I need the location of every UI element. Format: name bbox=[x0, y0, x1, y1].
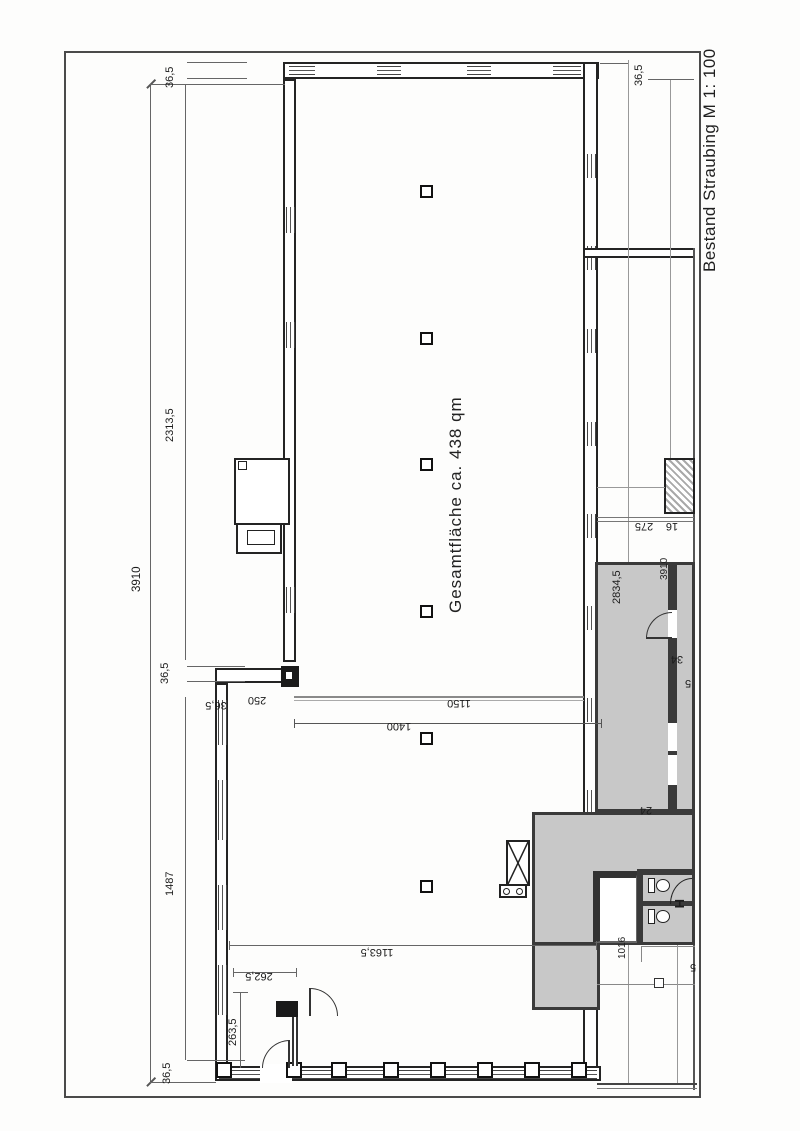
window-strip bbox=[286, 587, 295, 613]
tick bbox=[233, 968, 234, 977]
tick bbox=[596, 941, 597, 950]
dim-label-24: 24 bbox=[637, 804, 655, 816]
dim-label-34: 34 bbox=[668, 653, 686, 665]
tick bbox=[187, 666, 245, 667]
column-footing bbox=[331, 1062, 347, 1078]
area-label: Gesamtfläche ca. 438 qm bbox=[450, 350, 480, 660]
window-strip bbox=[467, 66, 491, 75]
toilet-bowl-icon bbox=[656, 879, 670, 892]
dim-label-1400: 1400 bbox=[378, 720, 420, 732]
window-strip bbox=[553, 66, 581, 75]
dim-label-1150: 1150 bbox=[438, 697, 480, 709]
toilet-icon bbox=[648, 909, 655, 924]
dim-label-edge-5: 5 bbox=[688, 961, 698, 973]
annex-line bbox=[597, 984, 695, 985]
drawing-title: Bestand Straubing M 1: 100 bbox=[704, 25, 734, 295]
wall-top bbox=[283, 62, 599, 79]
tick bbox=[601, 719, 602, 728]
dim-label-36-top-left: 36,5 bbox=[164, 56, 180, 98]
entry-wall-block bbox=[276, 1001, 298, 1017]
window-strip bbox=[218, 885, 227, 930]
dim-label-263: 263,5 bbox=[227, 1000, 243, 1064]
column-footing bbox=[216, 1062, 232, 1078]
dim-label-3910-left: 3910 bbox=[131, 550, 147, 608]
dim-label-1163: 1163,5 bbox=[352, 946, 402, 958]
dim-label-36-top-right: 36,5 bbox=[633, 54, 649, 96]
dim-label-step-36: 36,5 bbox=[200, 699, 232, 711]
dim-line-right-inner bbox=[670, 80, 671, 458]
wc-partition-left bbox=[637, 869, 643, 945]
dim-label-5: 5 bbox=[682, 677, 694, 689]
dim-label-2834: 2834,5 bbox=[611, 548, 627, 626]
dim-label-250: 250 bbox=[240, 694, 274, 706]
shaft-x-icon bbox=[506, 840, 530, 886]
window-strip bbox=[587, 154, 596, 178]
dim-label-16: 16 bbox=[664, 520, 680, 532]
window-strip bbox=[289, 66, 315, 75]
shaft-hatch-box bbox=[664, 458, 695, 514]
column-footing bbox=[571, 1062, 587, 1078]
room-lower-gray-leg bbox=[532, 942, 600, 1010]
column bbox=[420, 185, 433, 198]
tick bbox=[187, 62, 247, 63]
tick bbox=[294, 719, 295, 728]
door-leaf bbox=[309, 988, 311, 1016]
window-strip bbox=[587, 329, 596, 353]
tick bbox=[187, 681, 245, 682]
dim-label-275: 275 bbox=[630, 520, 658, 532]
tick bbox=[600, 63, 628, 64]
dim-line-2313 bbox=[185, 84, 186, 660]
drawing-sheet: Bestand Straubing M 1: 100 bbox=[0, 0, 800, 1131]
dim-label-2313: 2313,5 bbox=[164, 388, 180, 462]
door-leaf bbox=[288, 1040, 290, 1068]
protrusion-corner-box bbox=[238, 461, 247, 470]
column bbox=[420, 605, 433, 618]
column-footing bbox=[477, 1062, 493, 1078]
tick bbox=[187, 78, 247, 79]
dim-line-3910 bbox=[150, 84, 151, 1083]
annex-bottom-wall bbox=[597, 1083, 697, 1089]
protrusion-inner-box bbox=[247, 530, 275, 545]
tick bbox=[296, 968, 297, 977]
dim-line-1163 bbox=[229, 945, 597, 946]
annex-line bbox=[641, 946, 695, 947]
annex-line bbox=[641, 946, 642, 962]
column-footing bbox=[524, 1062, 540, 1078]
dim-label-36-mid-left: 36,5 bbox=[159, 652, 175, 694]
column-footing bbox=[383, 1062, 399, 1078]
double-door-icon bbox=[499, 884, 527, 898]
column-footing bbox=[430, 1062, 446, 1078]
toilet-icon bbox=[648, 878, 655, 893]
door-knob-icon bbox=[503, 888, 510, 895]
window-strip bbox=[286, 322, 295, 348]
window-strip bbox=[587, 514, 596, 538]
dim-line-1400 bbox=[294, 723, 602, 724]
wc-partition-top bbox=[637, 869, 695, 875]
room-upper-gray bbox=[595, 562, 695, 812]
tick bbox=[229, 941, 230, 950]
annex-line bbox=[597, 487, 665, 488]
column bbox=[420, 332, 433, 345]
column bbox=[420, 458, 433, 471]
annex-top-wall bbox=[583, 248, 695, 258]
window-opening bbox=[668, 723, 677, 751]
dim-label-262: 262,5 bbox=[238, 970, 280, 982]
dim-label-1487: 1487 bbox=[164, 856, 180, 912]
window-strip bbox=[377, 66, 401, 75]
dim-label-1016: 1016 bbox=[617, 924, 633, 972]
window-strip bbox=[218, 780, 227, 840]
window-opening bbox=[668, 755, 677, 785]
dim-label-3910-right: 3910 bbox=[659, 544, 675, 594]
tick bbox=[233, 992, 248, 993]
dim-connector bbox=[150, 1082, 216, 1083]
wall-left-upper bbox=[283, 79, 296, 662]
toilet-bowl-icon bbox=[656, 910, 670, 923]
window-strip bbox=[587, 422, 596, 446]
small-box bbox=[654, 978, 664, 988]
door-knob-icon bbox=[516, 888, 523, 895]
column bbox=[420, 732, 433, 745]
dim-line-1487 bbox=[185, 697, 186, 1060]
pillar-notch bbox=[285, 671, 293, 680]
door-leaf bbox=[646, 637, 672, 639]
column bbox=[420, 880, 433, 893]
window-strip bbox=[286, 207, 295, 233]
annex-line bbox=[677, 945, 678, 1085]
dim-label-36-bottom-left: 36,5 bbox=[161, 1052, 177, 1094]
tick bbox=[648, 79, 694, 80]
wc-handle-symbol: H bbox=[671, 899, 685, 913]
window-strip bbox=[218, 965, 227, 1015]
